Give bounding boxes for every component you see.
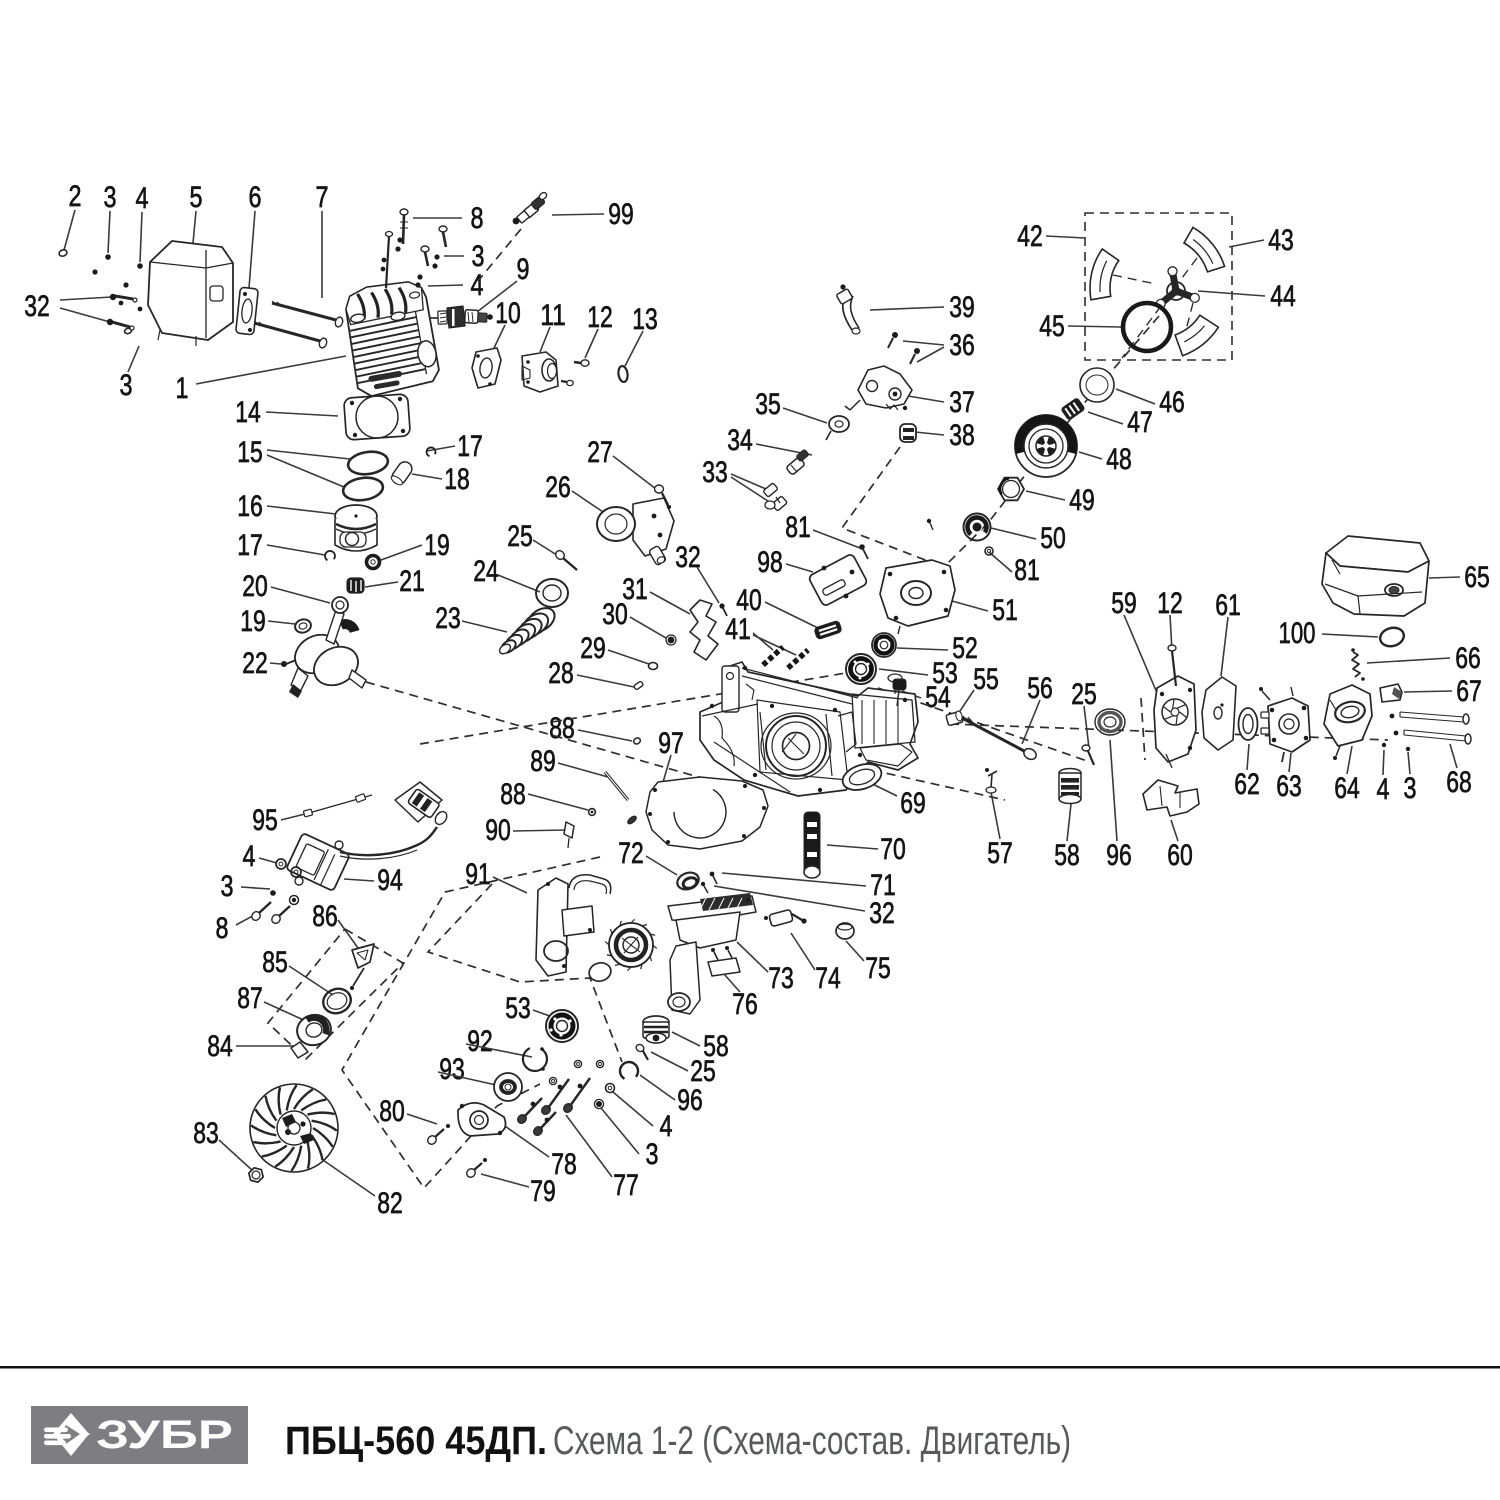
svg-text:77: 77 [613, 1169, 639, 1202]
svg-text:45: 45 [1039, 310, 1065, 343]
svg-text:1: 1 [176, 372, 189, 405]
svg-text:88: 88 [500, 778, 526, 811]
svg-text:76: 76 [732, 988, 758, 1021]
svg-text:47: 47 [1127, 406, 1153, 439]
svg-text:13: 13 [632, 303, 658, 336]
svg-text:17: 17 [457, 430, 483, 463]
svg-text:100: 100 [1279, 617, 1316, 650]
svg-text:4: 4 [243, 840, 256, 873]
svg-text:69: 69 [900, 787, 926, 820]
svg-text:27: 27 [587, 436, 613, 469]
svg-text:20: 20 [242, 570, 268, 603]
svg-text:24: 24 [473, 555, 499, 588]
svg-text:78: 78 [551, 1148, 577, 1181]
svg-text:12: 12 [587, 301, 613, 334]
svg-text:85: 85 [262, 946, 288, 979]
svg-text:93: 93 [439, 1053, 465, 1086]
svg-text:8: 8 [216, 912, 229, 945]
svg-text:30: 30 [602, 598, 628, 631]
svg-text:34: 34 [727, 424, 753, 457]
svg-text:60: 60 [1167, 839, 1193, 872]
svg-text:58: 58 [1054, 839, 1080, 872]
svg-text:32: 32 [24, 290, 50, 323]
svg-text:84: 84 [207, 1030, 233, 1063]
svg-text:39: 39 [949, 291, 975, 324]
svg-text:32: 32 [675, 541, 701, 574]
svg-text:4: 4 [660, 1110, 673, 1143]
svg-text:81: 81 [1014, 554, 1040, 587]
svg-text:74: 74 [815, 962, 841, 995]
svg-text:92: 92 [467, 1025, 493, 1058]
svg-text:22: 22 [242, 647, 268, 680]
svg-text:35: 35 [755, 388, 781, 421]
svg-text:8: 8 [471, 202, 484, 235]
svg-text:37: 37 [949, 386, 975, 419]
svg-text:16: 16 [237, 490, 263, 523]
svg-text:81: 81 [785, 511, 811, 544]
svg-text:68: 68 [1446, 766, 1472, 799]
svg-text:17: 17 [237, 529, 263, 562]
svg-text:82: 82 [377, 1187, 403, 1220]
svg-text:94: 94 [377, 864, 403, 897]
svg-text:75: 75 [865, 952, 891, 985]
svg-text:43: 43 [1268, 224, 1294, 257]
svg-text:57: 57 [987, 837, 1013, 870]
svg-text:80: 80 [379, 1095, 405, 1128]
svg-text:96: 96 [1106, 839, 1132, 872]
svg-text:62: 62 [1234, 768, 1260, 801]
svg-text:51: 51 [992, 594, 1018, 627]
svg-text:19: 19 [424, 529, 450, 562]
svg-text:38: 38 [949, 419, 975, 452]
svg-text:42: 42 [1017, 220, 1043, 253]
svg-text:14: 14 [235, 396, 261, 429]
svg-text:36: 36 [949, 329, 975, 362]
svg-text:ПБЦ-560 45ДП.: ПБЦ-560 45ДП. [285, 1419, 547, 1463]
svg-text:29: 29 [580, 632, 606, 665]
svg-text:23: 23 [435, 602, 461, 635]
svg-text:86: 86 [312, 900, 338, 933]
svg-text:63: 63 [1276, 770, 1302, 803]
svg-text:5: 5 [190, 181, 203, 214]
svg-text:10: 10 [495, 297, 521, 330]
svg-text:67: 67 [1456, 675, 1482, 708]
svg-text:46: 46 [1159, 386, 1185, 419]
svg-text:49: 49 [1069, 484, 1095, 517]
svg-text:6: 6 [249, 181, 262, 214]
svg-text:3: 3 [104, 181, 117, 214]
svg-text:41: 41 [725, 613, 751, 646]
svg-text:4: 4 [136, 182, 149, 215]
svg-text:9: 9 [517, 253, 530, 286]
svg-text:66: 66 [1455, 642, 1481, 675]
svg-text:18: 18 [444, 463, 470, 496]
svg-text:33: 33 [702, 456, 728, 489]
svg-text:87: 87 [237, 982, 263, 1015]
svg-text:65: 65 [1464, 561, 1490, 594]
svg-text:95: 95 [252, 804, 278, 837]
svg-text:48: 48 [1106, 443, 1132, 476]
svg-text:89: 89 [530, 745, 556, 778]
svg-text:72: 72 [618, 837, 644, 870]
svg-text:91: 91 [465, 858, 491, 891]
svg-text:26: 26 [545, 471, 571, 504]
svg-text:3: 3 [120, 369, 133, 402]
svg-text:44: 44 [1270, 280, 1296, 313]
svg-text:50: 50 [1040, 522, 1066, 555]
svg-text:90: 90 [485, 814, 511, 847]
svg-text:3: 3 [221, 870, 234, 903]
svg-text:55: 55 [973, 663, 999, 696]
svg-text:83: 83 [193, 1117, 219, 1150]
svg-text:70: 70 [880, 833, 906, 866]
svg-text:4: 4 [471, 269, 484, 302]
svg-text:ЗУБР: ЗУБР [96, 1413, 233, 1457]
svg-text:7: 7 [316, 181, 329, 214]
svg-text:21: 21 [399, 565, 425, 598]
svg-text:19: 19 [240, 605, 266, 638]
svg-text:11: 11 [540, 299, 566, 332]
svg-text:98: 98 [757, 546, 783, 579]
svg-text:64: 64 [1334, 772, 1360, 805]
svg-text:96: 96 [677, 1084, 703, 1117]
svg-text:3: 3 [1404, 772, 1417, 805]
svg-text:2: 2 [69, 180, 82, 213]
svg-text:4: 4 [1377, 773, 1390, 806]
svg-text:Схема 1-2 (Схема-состав. Двига: Схема 1-2 (Схема-состав. Двигатель) [553, 1419, 1071, 1463]
svg-text:99: 99 [608, 198, 634, 231]
svg-text:25: 25 [507, 520, 533, 553]
svg-text:32: 32 [869, 897, 895, 930]
svg-text:73: 73 [768, 962, 794, 995]
svg-text:15: 15 [237, 436, 263, 469]
svg-text:3: 3 [646, 1138, 659, 1171]
svg-text:53: 53 [505, 992, 531, 1025]
svg-text:28: 28 [548, 657, 574, 690]
